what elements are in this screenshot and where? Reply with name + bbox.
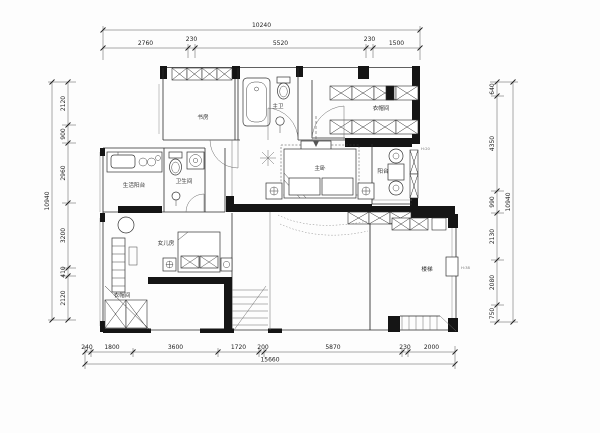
dim-left-seg3: 3200 [60, 228, 67, 243]
room-label-closet-top: 衣帽间 [373, 104, 390, 112]
room-label-master-bedroom: 主卧 [314, 164, 326, 172]
ceiling-light-symbol [260, 150, 276, 166]
dim-bottom-seg1: 1800 [104, 344, 119, 351]
dim-right-total: 10940 [505, 192, 512, 211]
dimension-lines-right: 640 4350 990 2130 2080 750 10940 [489, 80, 518, 325]
dim-left-seg5: 2120 [60, 290, 67, 305]
stairs-middle [232, 286, 268, 330]
wardrobe-hatch-balcony-wall [410, 150, 418, 198]
floor-plan-drawing: 10240 2760 230 5520 230 1500 240 1800 36… [0, 0, 600, 433]
annotation-window: H:38 [461, 265, 471, 270]
dim-right-seg3: 2130 [489, 229, 496, 244]
sink-bathroom [172, 192, 180, 206]
annotation-balcony: H:20 [421, 146, 431, 151]
room-label-master-bath: 主卫 [272, 102, 284, 110]
room-label-daughter-room: 女儿房 [158, 239, 175, 247]
kitchen-counter [107, 152, 162, 172]
room-label-service-balcony: 生活阳台 [123, 181, 146, 189]
dimension-lines-bottom: 240 1800 3600 1720 200 5870 230 2000 156… [81, 344, 457, 369]
room-label-closet-bottom: 衣帽间 [114, 291, 131, 299]
room-label-stair-room: 楼梯 [421, 265, 433, 273]
dim-bottom-seg7: 2000 [424, 344, 439, 351]
washing-machine [187, 152, 204, 169]
dim-bottom-seg5: 5870 [325, 344, 340, 351]
dim-top-seg3: 230 [364, 36, 376, 43]
dim-left-seg0: 2120 [60, 96, 67, 111]
dim-left-total: 10940 [44, 191, 51, 210]
dim-right-seg2: 990 [489, 196, 496, 208]
dim-top-seg0: 2760 [138, 40, 153, 47]
wardrobe-hatch-closet-top-row [330, 86, 418, 100]
wardrobe-hatch-stair-room [392, 218, 446, 230]
toilet-master-bath [277, 77, 290, 99]
dim-top-seg4: 1500 [389, 40, 404, 47]
dim-right-seg5: 750 [489, 308, 496, 320]
dim-top-seg2: 5520 [273, 40, 288, 47]
stairs-right [400, 316, 456, 331]
room-label-balcony: 阳台 [377, 167, 389, 175]
dim-top-total: 10240 [252, 22, 271, 29]
dim-right-seg4: 2080 [489, 275, 496, 290]
dimension-lines-top: 10240 2760 230 5520 230 1500 [101, 22, 423, 60]
daughter-bed [178, 232, 220, 272]
toilet-bathroom [169, 152, 182, 175]
wardrobe-hatch-closet-bottom-row [330, 120, 418, 134]
dim-left-seg2: 2960 [60, 165, 67, 180]
mirror [129, 247, 137, 265]
bathtub [243, 78, 270, 126]
nightstand-daughter-left [163, 258, 176, 271]
dim-right-seg0: 640 [489, 83, 496, 95]
wardrobe-hatch-study-top [172, 68, 232, 80]
nightstand-master-right [358, 183, 374, 199]
dim-top-seg1: 230 [186, 36, 198, 43]
dim-bottom-total: 15660 [260, 357, 279, 364]
dim-bottom-seg3: 1720 [231, 344, 246, 351]
dim-right-seg1: 4350 [489, 136, 496, 151]
dimension-lines-left: 2120 900 2960 3200 410 2120 10940 [44, 80, 76, 323]
floor-plan: 10240 2760 230 5520 230 1500 240 1800 36… [0, 0, 600, 433]
dim-left-seg4: 410 [60, 266, 67, 278]
dim-bottom-seg6: 230 [399, 344, 411, 351]
dim-left-seg1: 900 [60, 128, 67, 140]
dim-bottom-seg2: 3600 [168, 344, 183, 351]
sink-master-bath [276, 117, 284, 133]
bookshelf [112, 238, 125, 292]
balcony-plants [388, 149, 404, 195]
dim-bottom-seg0: 240 [81, 344, 93, 351]
room-label-bathroom: 卫生间 [176, 177, 193, 185]
nightstand-master-left [266, 183, 282, 199]
plant-pot [118, 217, 134, 233]
window-stair-room [446, 257, 458, 276]
room-label-study: 书房 [197, 113, 209, 121]
nightstand-daughter-right [221, 258, 232, 271]
dim-bottom-seg4: 200 [257, 344, 269, 351]
